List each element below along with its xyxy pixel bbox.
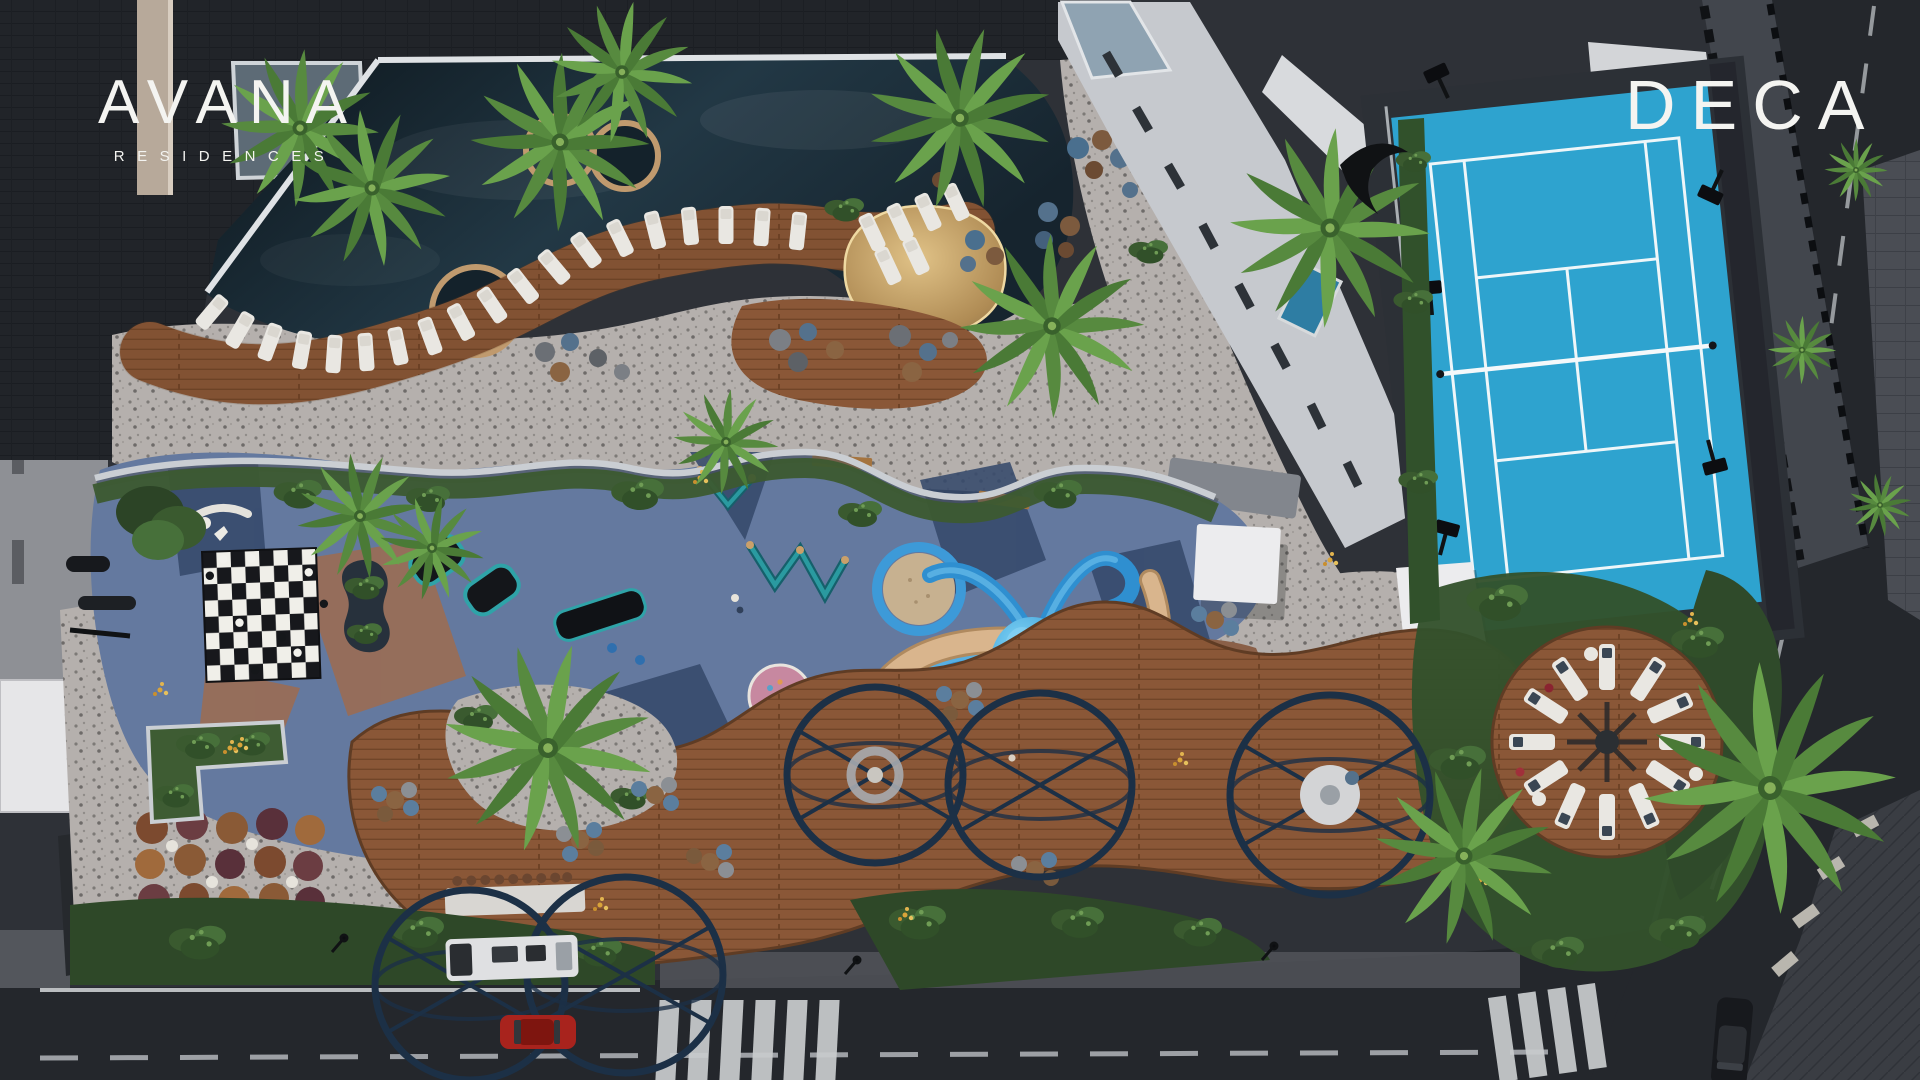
avana-logo-subtitle: RESIDENCES bbox=[98, 148, 352, 165]
sidewalk-corner-left bbox=[0, 930, 70, 988]
white-cabana bbox=[1193, 524, 1288, 621]
deca-logo-title: DECA bbox=[1625, 70, 1870, 140]
giant-chessboard bbox=[202, 548, 331, 682]
red-car bbox=[500, 1015, 576, 1049]
site-plan-rendering: AVANA RESIDENCES DECA bbox=[0, 0, 1920, 1080]
roof-strip-top bbox=[340, 0, 1080, 60]
sand-play-circle bbox=[877, 547, 961, 631]
avana-logo: AVANA RESIDENCES bbox=[86, 72, 352, 165]
deca-logo: DECA bbox=[1610, 70, 1870, 140]
pool-edge-rim bbox=[378, 56, 1006, 60]
food-truck bbox=[445, 935, 578, 982]
round-lounge-deck bbox=[1492, 627, 1722, 857]
avana-logo-title: AVANA bbox=[98, 72, 352, 134]
